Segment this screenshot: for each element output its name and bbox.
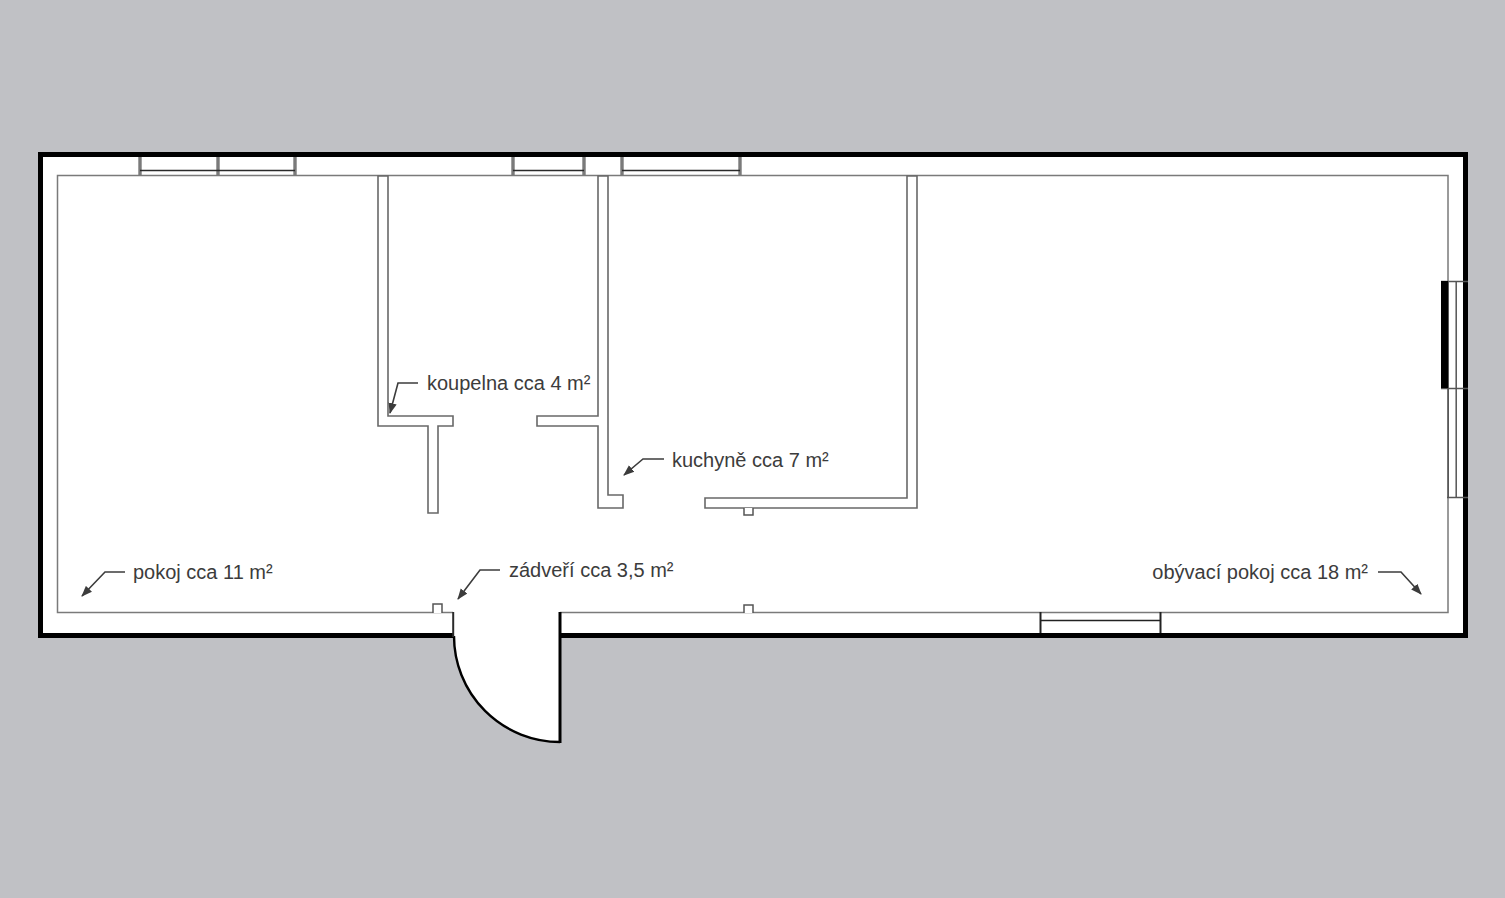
room-label-kuchyne: kuchyně cca 7 m²	[672, 449, 829, 471]
door-opening	[453, 611, 560, 639]
room-label-zadveri: zádveří cca 3,5 m²	[509, 559, 674, 581]
window-post	[293, 157, 296, 176]
floor-plan-canvas: koupelna cca 4 m² kuchyně cca 7 m² pokoj…	[0, 0, 1505, 898]
floor-plan: koupelna cca 4 m² kuchyně cca 7 m² pokoj…	[0, 0, 1505, 898]
window-post	[582, 157, 585, 176]
notch	[744, 508, 753, 515]
room-label-koupelna: koupelna cca 4 m²	[427, 372, 591, 394]
window-post	[511, 157, 514, 176]
room-label-obyvaci: obývací pokoj cca 18 m²	[1152, 561, 1368, 583]
window-post	[738, 157, 741, 176]
room-label-pokoj: pokoj cca 11 m²	[133, 561, 273, 583]
notch	[744, 605, 753, 613]
notch	[433, 604, 442, 613]
window-post	[216, 157, 219, 176]
window-post	[620, 157, 623, 176]
window-panel-bar	[1441, 281, 1448, 388]
window-post	[138, 157, 141, 176]
